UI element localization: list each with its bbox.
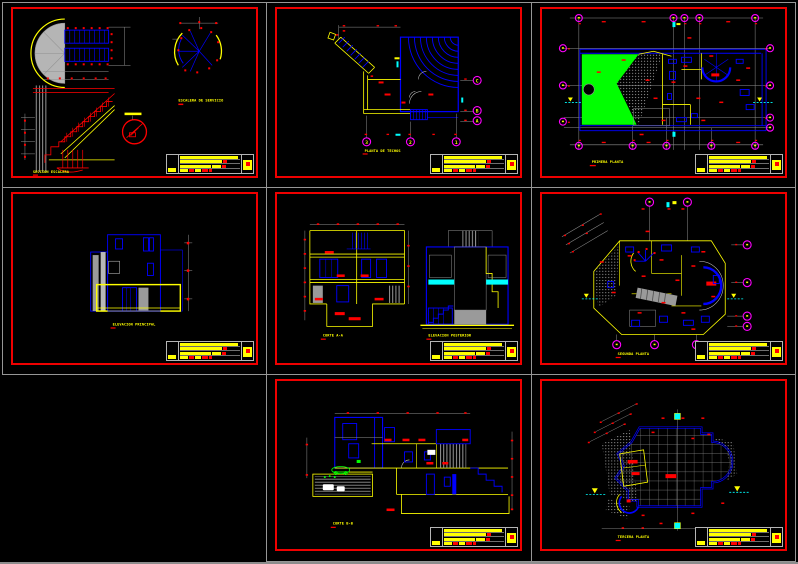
svg-text:3: 3 — [365, 140, 368, 146]
title-block-stamp — [242, 342, 253, 360]
railing-detail-circle — [123, 113, 147, 144]
plan-annotations — [600, 231, 716, 330]
small-spiral-stair-plan — [172, 17, 221, 73]
tile-grid-line — [795, 2, 796, 561]
title-block-stamp — [506, 155, 517, 173]
sheet-tercera-planta[interactable]: TERCERA PLANTA — [532, 375, 795, 560]
svg-text:A: A — [476, 119, 479, 125]
title-block-stamp — [771, 155, 782, 173]
title-block — [166, 154, 254, 174]
curved-stair — [702, 53, 730, 81]
svg-text:2: 2 — [409, 140, 412, 146]
title-block-logo — [167, 155, 179, 173]
title-block-stamp — [771, 342, 782, 360]
sheet-frame: CORTE B-B — [275, 379, 522, 551]
title-block-stamp — [506, 342, 517, 360]
title-block-logo — [696, 155, 708, 173]
title-block-logo — [167, 342, 179, 360]
title-block-rows — [179, 342, 242, 360]
title-block-rows — [708, 155, 771, 173]
elevation-drawing: ELEVACION PRINCIPAL — [13, 194, 256, 363]
dimension-line — [184, 235, 192, 311]
sheet-cortes-y-elevaciones[interactable]: CORTE A-A ELEVACION POSTERIOR — [267, 188, 530, 374]
sheet-frame: ELEVACION PRINCIPAL — [11, 192, 258, 365]
ramp — [636, 288, 678, 306]
first-floor-plan-drawing: PRIMERA PLANTA — [542, 9, 785, 176]
title-block — [695, 341, 783, 361]
title-block — [166, 341, 254, 361]
roof-hatch — [400, 37, 458, 111]
section-b-drawing: CORTE B-B — [277, 381, 520, 549]
title-block — [430, 154, 518, 174]
title-block-logo — [431, 528, 443, 546]
drawing-label: PLANTA DE TECHOS — [365, 149, 401, 153]
roof-plan-drawing: C B A 3 2 1 PLANTA DE TECHOS — [277, 9, 520, 176]
dimension-ticks — [564, 208, 737, 327]
drawing-label: SEGUNDA PLANTA — [618, 352, 650, 356]
tree-circle — [583, 84, 594, 95]
sheet-corte-b-b[interactable]: CORTE B-B — [267, 375, 530, 560]
title-block-rows — [443, 528, 506, 546]
drawing-label: CORTE B-B — [333, 522, 354, 526]
stair-section — [21, 85, 115, 172]
sheet-frame: TERCERA PLANTA — [540, 379, 787, 551]
dimension-lines — [306, 412, 514, 510]
sheet-frame: SEGUNDA PLANTA — [540, 192, 787, 365]
spiral-stair-plan — [31, 19, 131, 87]
sheet-segunda-planta[interactable]: SEGUNDA PLANTA — [532, 188, 795, 374]
title-block — [695, 154, 783, 174]
sheet-frame: CORTE A-A ELEVACION POSTERIOR — [275, 192, 522, 365]
title-block-rows — [708, 342, 771, 360]
drawing-label: ELEVACION PRINCIPAL — [113, 322, 156, 326]
terrace-plan-drawing: TERCERA PLANTA — [542, 381, 785, 549]
sheet-frame: PRIMERA PLANTA — [540, 7, 787, 178]
sheet-primera-planta[interactable]: PRIMERA PLANTA — [532, 3, 795, 187]
carport-wing — [313, 450, 435, 497]
drawing-label: ELEVACION POSTERIOR — [428, 333, 471, 337]
title-block-logo — [431, 155, 443, 173]
sheet-frame: ESCALERA DE SERVICIO SECCION ESCA — [11, 7, 258, 178]
building-elevation — [91, 235, 183, 311]
section-elevation-drawing: CORTE A-A ELEVACION POSTERIOR — [277, 194, 520, 363]
svg-text:C: C — [476, 78, 479, 84]
title-block — [430, 341, 518, 361]
drawing-label: SECCION ESCALERA — [33, 170, 70, 174]
rear-elevation — [420, 231, 514, 329]
sheet-detalle-escaleras[interactable]: ESCALERA DE SERVICIO SECCION ESCA — [3, 3, 266, 187]
title-block-stamp — [506, 528, 517, 546]
svg-text:B: B — [476, 109, 479, 115]
section-a-a — [304, 223, 410, 326]
title-block — [430, 527, 518, 547]
title-block-logo — [696, 342, 708, 360]
drawing-label: CORTE A-A — [323, 333, 344, 337]
second-floor-plan-drawing: SEGUNDA PLANTA — [542, 194, 785, 363]
title-block-logo — [696, 528, 708, 546]
title-block-rows — [179, 155, 242, 173]
sheet-elevacion-principal[interactable]: ELEVACION PRINCIPAL — [3, 188, 266, 374]
title-block-rows — [443, 155, 506, 173]
drawing-label: ESCALERA DE SERVICIO — [178, 99, 223, 103]
diagonal-wing — [328, 30, 375, 77]
cad-layout-canvas: ESCALERA DE SERVICIO SECCION ESCA — [0, 0, 798, 564]
title-block-rows — [708, 528, 771, 546]
title-block-stamp — [771, 528, 782, 546]
roof-walls — [364, 71, 459, 119]
drawing-label: PRIMERA PLANTA — [592, 160, 624, 164]
title-block-logo — [431, 342, 443, 360]
svg-text:1: 1 — [455, 140, 458, 146]
sheet-frame: C B A 3 2 1 PLANTA DE TECHOS — [275, 7, 522, 178]
drawing-label: TERCERA PLANTA — [618, 535, 650, 539]
furniture — [608, 245, 720, 326]
curved-balcony — [699, 261, 723, 310]
section-drawing — [335, 417, 509, 513]
title-block-rows — [443, 342, 506, 360]
furniture — [667, 57, 754, 121]
title-block — [695, 527, 783, 547]
sheet-planta-de-techos[interactable]: C B A 3 2 1 PLANTA DE TECHOS — [267, 3, 530, 187]
title-block-stamp — [242, 155, 253, 173]
tile-floor — [630, 310, 656, 326]
stair-details-drawing: ESCALERA DE SERVICIO SECCION ESCA — [13, 9, 256, 176]
